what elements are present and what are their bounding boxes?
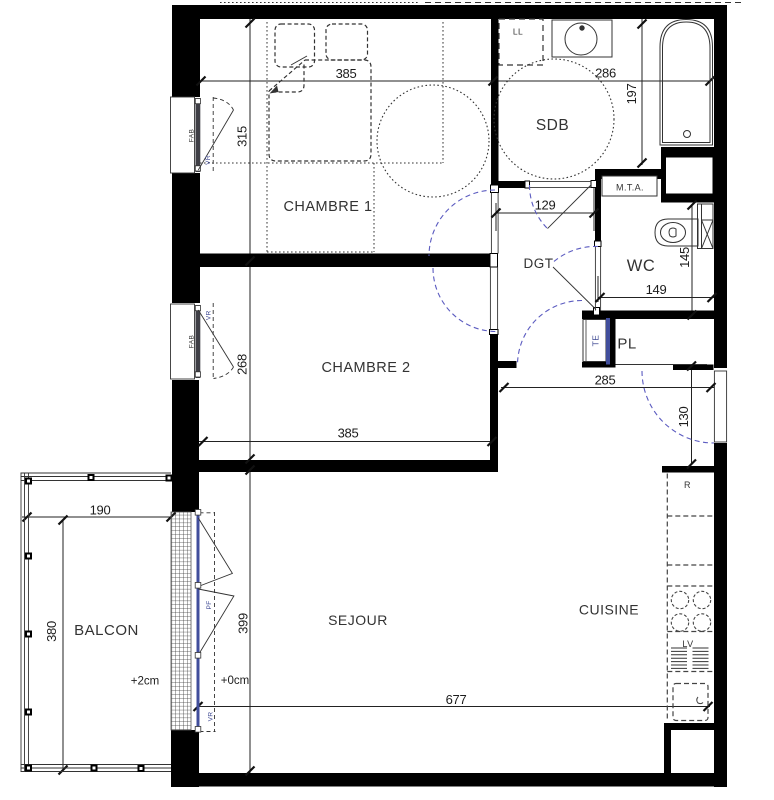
svg-text:TE: TE [591,335,601,347]
svg-text:145: 145 [677,247,692,268]
svg-text:+2cm: +2cm [131,676,159,688]
svg-text:CHAMBRE 2: CHAMBRE 2 [321,360,410,376]
svg-text:PL: PL [617,336,636,353]
svg-text:677: 677 [446,692,467,707]
svg-text:FAB: FAB [189,335,196,348]
svg-text:190: 190 [90,503,111,518]
svg-text:PF: PF [206,600,213,609]
svg-text:FAB: FAB [189,129,196,142]
svg-text:285: 285 [595,373,616,388]
svg-text:BALCON: BALCON [74,622,139,639]
svg-text:SDB: SDB [536,117,569,134]
svg-text:VR: VR [206,310,213,320]
svg-text:149: 149 [646,282,667,297]
svg-text:CHAMBRE 1: CHAMBRE 1 [283,199,372,215]
svg-text:129: 129 [535,198,556,213]
svg-text:380: 380 [44,621,59,642]
svg-text:VR: VR [208,712,215,722]
svg-text:268: 268 [235,354,250,375]
svg-text:399: 399 [236,613,251,634]
svg-text:LL: LL [513,27,523,37]
svg-text:DGT: DGT [524,256,554,271]
svg-text:+0cm: +0cm [221,675,249,687]
svg-text:WC: WC [627,257,656,275]
svg-text:SEJOUR: SEJOUR [328,612,388,628]
svg-text:286: 286 [595,66,616,81]
svg-text:130: 130 [676,407,691,428]
svg-text:385: 385 [336,66,357,81]
svg-text:CUISINE: CUISINE [579,602,639,618]
svg-text:VR: VR [205,155,212,165]
svg-text:385: 385 [338,426,359,441]
svg-text:LV: LV [682,639,693,649]
svg-text:M.T.A.: M.T.A. [616,183,644,193]
svg-text:R: R [684,480,691,490]
svg-text:197: 197 [624,84,639,105]
svg-text:315: 315 [235,126,250,147]
